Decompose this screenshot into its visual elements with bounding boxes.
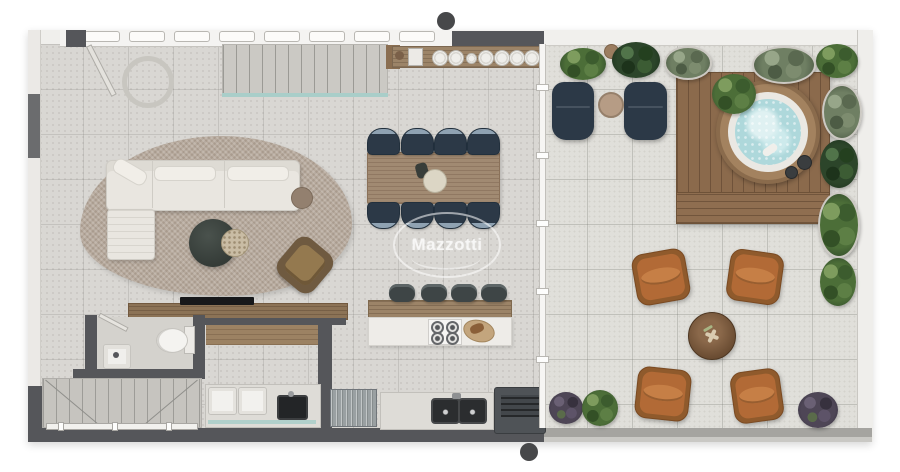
sofa-pillow [227,166,289,181]
plate [524,50,540,66]
plate [494,50,510,66]
plate [448,50,464,66]
planter [822,84,862,140]
railing-post [112,422,118,431]
dining-chair [467,128,500,155]
glass-partition [539,44,546,428]
potted-plant [549,392,583,424]
faucet [113,352,119,358]
wall-segment-dark [452,31,544,46]
wall-segment-dark [28,94,40,158]
planter [712,74,756,114]
bottom-wall-edge [544,437,872,442]
potted-plant [798,392,838,428]
kitchen-sink [458,398,487,424]
decor-pot [395,51,404,60]
sofa-chaise [107,209,155,260]
wood-deck-step [676,192,830,224]
bar-stool [389,284,415,302]
sofa-seam [224,161,225,208]
lounger-cushion-fold [556,106,590,108]
partition-mullion [536,84,549,91]
stainless-appliance [330,389,377,427]
window-mullion [129,31,165,42]
decor-bowl [221,229,249,257]
bar-stool [481,284,507,302]
upper-staircase [222,44,388,95]
window-mullion [219,31,255,42]
sun-lounger [624,82,667,140]
planter [560,48,606,80]
toilet [156,328,188,353]
faucet [452,393,461,399]
wall-segment-dark [28,386,42,434]
partition-mullion [536,152,549,159]
right-wall [857,30,873,442]
planter [820,140,858,188]
stair-winder-line [45,380,99,426]
cognac-armchair [729,367,786,425]
glass-railing [222,93,388,97]
side-table [291,187,313,209]
planter [664,46,712,80]
bar-stool [421,284,447,302]
potted-plant [582,390,618,426]
burner [431,332,444,345]
sofa-seam [152,161,153,208]
partition-mullion [536,356,549,363]
stair-railing [46,423,198,430]
round-skylight [122,56,174,108]
planter [818,192,860,258]
dining-chair [367,202,400,229]
window-mullion [174,31,210,42]
kitchen-sink [431,398,460,424]
lounger-cushion-fold [628,106,663,108]
partition-mullion [536,288,549,295]
bottom-wall-interior [28,428,544,442]
railing-post [58,422,64,431]
planter [816,44,858,78]
washer [208,387,237,415]
decor-tray [408,48,423,66]
bar-stool [451,284,477,302]
glass-splashback [208,420,316,424]
entry-door-frame [66,30,86,47]
stair-winder-line [144,380,198,426]
cognac-armchair [633,365,692,422]
window-mullion [354,31,390,42]
armchair-cushion [282,242,328,289]
deck-lantern [785,166,798,179]
planter [820,258,856,306]
dining-chair [434,128,467,155]
dining-chair [401,128,434,155]
sideboard [206,325,318,345]
bottom-section-marker [520,443,538,461]
utility-sink [277,395,308,420]
bathroom-wall [85,315,97,377]
planter [752,46,816,84]
faucet [288,391,294,397]
sun-lounger [552,82,594,140]
floor-plan-render: Mazzotti [0,0,900,472]
top-section-marker [437,12,455,30]
terrace-top-wall [544,30,872,46]
window-mullion [309,31,345,42]
planter [612,42,660,78]
grill-grate [501,395,539,417]
dining-chair [367,128,400,155]
dining-chair [401,202,434,229]
plate [509,50,525,66]
lounger-side-table [598,92,624,118]
fire-pit-table [688,312,736,360]
dryer [238,387,267,415]
deck-lantern [797,155,812,170]
window-mullion [84,31,120,42]
dining-chair [467,202,500,229]
partition-mullion [536,220,549,227]
cognac-armchair [630,247,692,308]
left-wall [28,30,41,428]
plate [432,50,448,66]
plate [478,50,494,66]
cognac-armchair [725,247,786,306]
centerpiece-plate [423,169,447,193]
window-mullion [264,31,300,42]
burner [446,332,459,345]
dining-chair [434,202,467,229]
sofa-pillow [154,166,216,181]
plate [466,53,477,64]
tv [180,297,254,305]
lower-staircase [42,378,202,428]
railing-post [166,422,172,431]
window-mullion [399,31,435,42]
